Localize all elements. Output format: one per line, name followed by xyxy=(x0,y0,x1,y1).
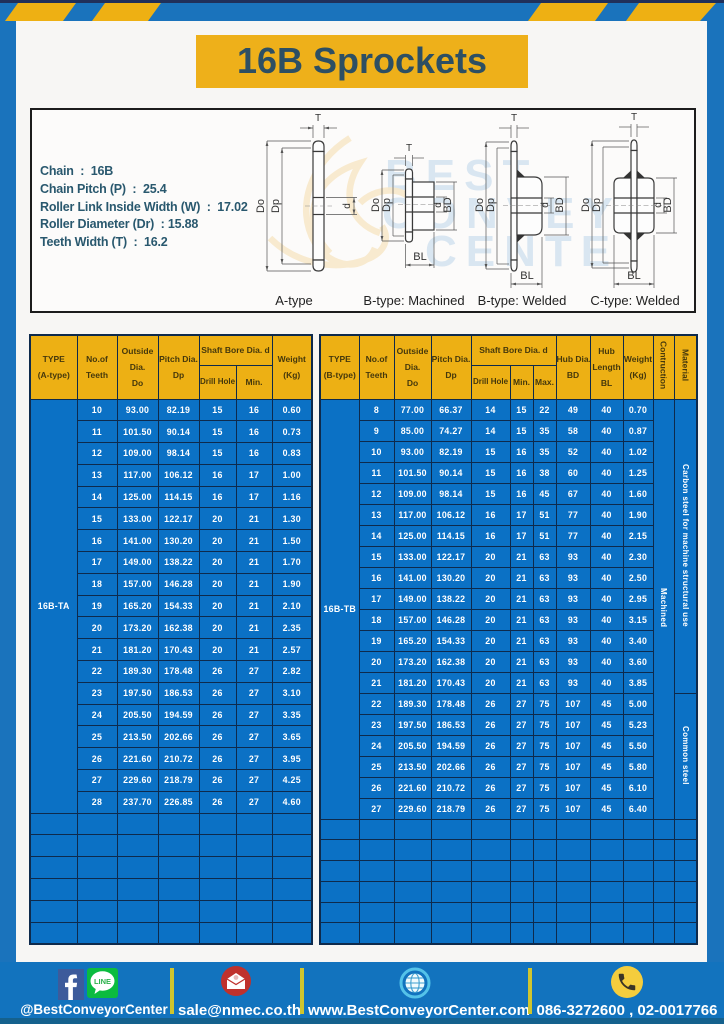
svg-text:BD: BD xyxy=(442,197,454,212)
svg-text:BL: BL xyxy=(520,270,533,282)
svg-text:B-type: Welded: B-type: Welded xyxy=(478,293,567,308)
svg-text:BD: BD xyxy=(662,197,674,212)
svg-text:LINE: LINE xyxy=(94,977,111,986)
svg-text:T: T xyxy=(631,112,637,123)
svg-text:Dp: Dp xyxy=(381,198,393,212)
svg-text:B-type: Machined: B-type: Machined xyxy=(363,293,464,308)
svg-text:A-type: A-type xyxy=(275,293,313,308)
svg-text:T: T xyxy=(315,113,321,124)
svg-text:T: T xyxy=(511,113,517,124)
svg-text:d: d xyxy=(540,202,551,208)
svg-text:BL: BL xyxy=(627,270,640,282)
svg-text:T: T xyxy=(406,143,412,154)
svg-text:Dp: Dp xyxy=(591,198,603,212)
svg-text:BL: BL xyxy=(413,251,426,263)
svg-text:Dp: Dp xyxy=(485,198,497,212)
svg-text:d: d xyxy=(342,203,353,209)
svg-text:BD: BD xyxy=(554,197,566,212)
svg-text:C-type: Welded: C-type: Welded xyxy=(590,293,679,308)
